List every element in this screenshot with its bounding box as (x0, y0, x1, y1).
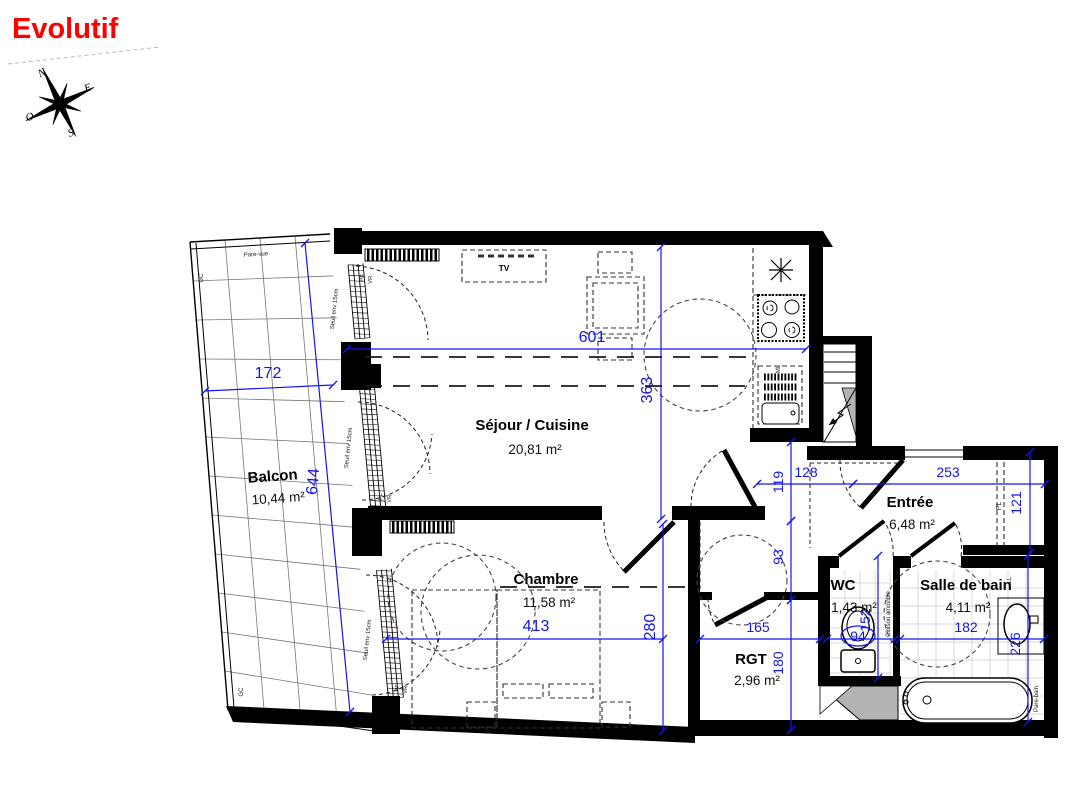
kitchen-fittings: ML (753, 248, 807, 428)
dim-bathroom-width: 182 (954, 619, 978, 635)
washing-machine-label: ML (776, 364, 782, 373)
dim-bathroom-depth: 226 (1007, 632, 1023, 656)
storage-label: RGT (735, 651, 767, 668)
threshold-label: Seuil env 15cm (344, 427, 354, 468)
wc-door-leaf (839, 521, 884, 556)
compass-west: O (24, 110, 36, 124)
removable-partition-label: Cloison amovible (886, 591, 892, 637)
privacy-screen-label: Pare-vue (244, 251, 269, 259)
pillow (549, 684, 593, 698)
french-door-label: PF (360, 273, 367, 282)
dim-balcony-width: 172 (255, 365, 282, 382)
floor-plan: GC GC Pare-vue (0, 0, 1086, 800)
wc-label: WC (831, 577, 856, 594)
dimension-lines (201, 239, 1049, 735)
turning-circle (388, 543, 496, 651)
bathroom-area: 4,11 m² (946, 600, 991, 615)
bedroom-area: 11,58 m² (523, 595, 576, 610)
sink (762, 403, 799, 424)
threshold-label: Seuil env 15cm (330, 288, 340, 329)
entry-area: 6,48 m² (889, 517, 935, 532)
roller-shutter-label: VR (387, 494, 394, 504)
living-furniture: TV (365, 250, 756, 411)
dim-living-width: 601 (579, 329, 606, 346)
property-line (8, 47, 160, 64)
plan-title: Evolutif (12, 13, 119, 45)
living-door-leaf (724, 450, 755, 507)
dim-storage-depth: 180 (770, 651, 786, 675)
roller-shutter-label: VR (403, 685, 410, 695)
bath-screen-label: Pare-bain (1034, 686, 1040, 712)
guardrail-label: GC (239, 687, 245, 697)
light-point-icon (769, 258, 793, 282)
balcony-label: Balcon (247, 466, 298, 486)
bedroom-door-leaf (624, 522, 674, 572)
closet-label: PL (996, 502, 1003, 511)
facade-windows (348, 263, 403, 698)
balcony-area: 10,44 m² (251, 489, 306, 508)
french-door-label: PF (379, 492, 386, 501)
wc-area: 1,43 m² (831, 600, 877, 615)
stair-wedge (842, 388, 856, 436)
chair (598, 252, 632, 273)
dim-passage-depth: 119 (770, 471, 786, 494)
bathtub (903, 678, 1032, 723)
dim-bedroom-width: 413 (523, 618, 550, 635)
floor-plan-sheet: GC GC Pare-vue (0, 0, 1086, 800)
bedroom-label: Chambre (513, 571, 578, 588)
compass-rose-icon: N E S O (8, 51, 110, 153)
living-kitchen-area: 20,81 m² (508, 442, 562, 457)
dim-entry-left: 128 (794, 464, 818, 480)
threshold-label: Seuil env 15cm (363, 619, 373, 660)
dim-hall-depth: 93 (770, 549, 786, 565)
dining-table (587, 277, 644, 334)
dim-closet-depth: 121 (1008, 491, 1024, 515)
dim-balcony-length: 644 (304, 467, 323, 495)
dim-living-depth: 363 (639, 377, 656, 404)
pillow (503, 684, 543, 698)
tv-label: TV (499, 263, 510, 273)
duct-shaft (820, 686, 898, 720)
french-door-label: PF (395, 683, 402, 692)
guardrail-label: GC (199, 273, 205, 283)
living-kitchen-label: Séjour / Cuisine (475, 417, 588, 434)
storage-area: 2,96 m² (734, 673, 780, 688)
dim-entry-right: 253 (936, 464, 960, 480)
dim-bedroom-depth: 280 (642, 614, 659, 641)
bathroom-label: Salle de bain (920, 577, 1012, 594)
roller-shutter-label: VR (368, 275, 375, 285)
staircase (823, 344, 856, 442)
bed (497, 590, 600, 728)
wardrobe (412, 590, 497, 728)
radiators (365, 249, 756, 533)
dim-storage-width: 165 (746, 619, 770, 635)
entry-label: Entrée (887, 494, 934, 511)
